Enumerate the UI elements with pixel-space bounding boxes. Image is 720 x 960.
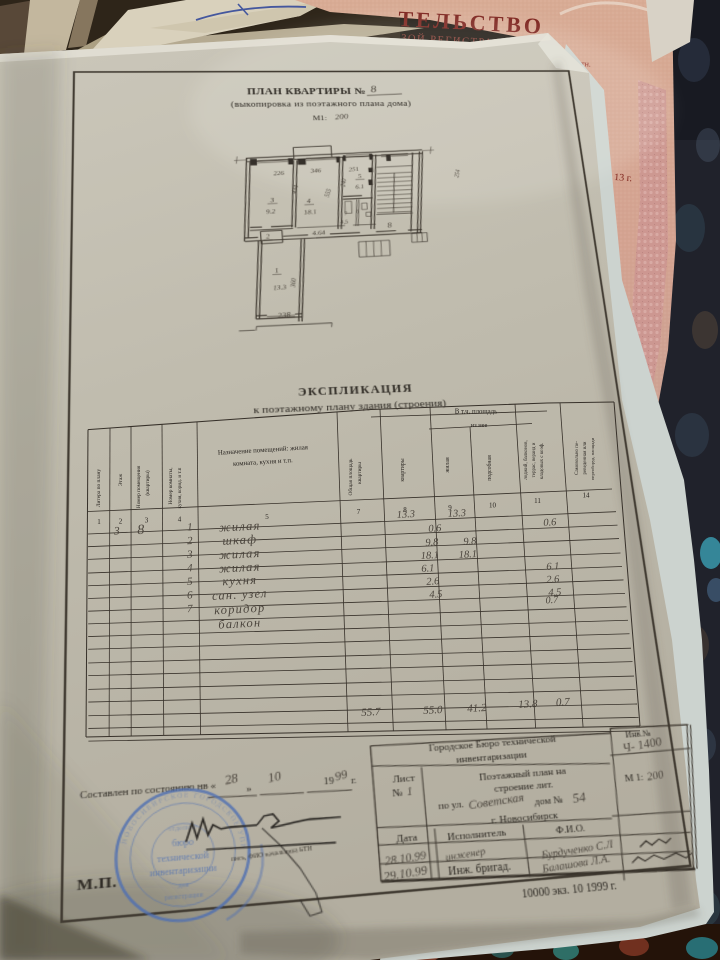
svg-text:8: 8 xyxy=(137,523,145,538)
svg-text:13.8: 13.8 xyxy=(518,698,538,711)
svg-text:5: 5 xyxy=(265,513,269,521)
svg-text:0.6: 0.6 xyxy=(428,523,442,535)
svg-text:7: 7 xyxy=(357,508,361,516)
svg-text:кухня, корид. и т.п: кухня, корид. и т.п xyxy=(177,467,183,508)
svg-text:переоборуд. площади: переоборуд. площади xyxy=(590,437,595,480)
svg-text:3: 3 xyxy=(113,525,121,537)
svg-text:13.3: 13.3 xyxy=(396,509,415,521)
svg-text:Номер помещения: Номер помещения xyxy=(136,465,142,508)
svg-text:Номер комнаты,: Номер комнаты, xyxy=(168,467,174,505)
svg-text:квартиры: квартиры xyxy=(357,462,363,484)
svg-text:Этаж: Этаж xyxy=(118,474,124,487)
svg-text:6.1: 6.1 xyxy=(546,561,560,573)
svg-text:1: 1 xyxy=(97,518,101,526)
svg-text:0.7: 0.7 xyxy=(545,595,559,607)
svg-text:В т.ч. площадь: В т.ч. площадь xyxy=(455,409,497,416)
svg-text:18.1: 18.1 xyxy=(420,550,439,562)
svg-text:Назначение помещений: жилая: Назначение помещений: жилая xyxy=(218,444,309,456)
svg-text:2.6: 2.6 xyxy=(546,574,560,586)
svg-text:Общая площадь: Общая площадь xyxy=(347,458,354,496)
svg-text:9.8: 9.8 xyxy=(425,537,439,549)
svg-text:13.3: 13.3 xyxy=(447,508,466,520)
svg-text:(квартиры): (квартиры) xyxy=(144,470,151,495)
svg-text:6.1: 6.1 xyxy=(421,563,435,575)
svg-text:2: 2 xyxy=(187,535,194,547)
svg-text:подсобная: подсобная xyxy=(486,455,493,481)
svg-text:2: 2 xyxy=(119,518,123,526)
svg-text:10: 10 xyxy=(489,502,497,510)
svg-text:6: 6 xyxy=(187,589,194,601)
svg-text:11: 11 xyxy=(534,497,541,505)
svg-text:квартиры: квартиры xyxy=(400,458,406,481)
svg-text:3: 3 xyxy=(145,517,149,525)
svg-text:55.7: 55.7 xyxy=(361,706,381,719)
svg-text:балкон: балкон xyxy=(218,615,262,631)
svg-text:18.1: 18.1 xyxy=(458,549,477,561)
svg-text:лоджий, балконов,: лоджий, балконов, xyxy=(524,440,529,479)
svg-text:4: 4 xyxy=(178,516,182,524)
svg-text:4: 4 xyxy=(187,562,194,574)
svg-text:Самовольно пе-: Самовольно пе- xyxy=(575,441,580,475)
svg-text:кладовых с коэф.: кладовых с коэф. xyxy=(540,443,545,479)
svg-text:41.2: 41.2 xyxy=(467,702,487,715)
svg-text:14: 14 xyxy=(583,492,591,500)
svg-text:5: 5 xyxy=(187,576,194,588)
svg-text:3: 3 xyxy=(186,549,194,561)
svg-text:4.5: 4.5 xyxy=(429,589,443,601)
svg-text:жилая: жилая xyxy=(445,457,451,474)
svg-text:из нее: из нее xyxy=(471,422,488,429)
svg-text:1: 1 xyxy=(187,521,193,533)
svg-text:7: 7 xyxy=(187,603,194,615)
svg-text:Литера по плану: Литера по плану xyxy=(96,469,102,508)
svg-text:0.6: 0.6 xyxy=(543,517,557,529)
svg-text:комната, кухня и т.п.: комната, кухня и т.п. xyxy=(233,457,293,468)
svg-text:2.6: 2.6 xyxy=(426,576,440,588)
svg-text:0.7: 0.7 xyxy=(556,696,571,709)
svg-text:реведенная или: реведенная или xyxy=(583,441,588,474)
svg-text:9.8: 9.8 xyxy=(463,536,477,548)
svg-text:террас, веранд и: террас, веранд и xyxy=(532,442,537,477)
svg-text:55.0: 55.0 xyxy=(423,704,443,717)
